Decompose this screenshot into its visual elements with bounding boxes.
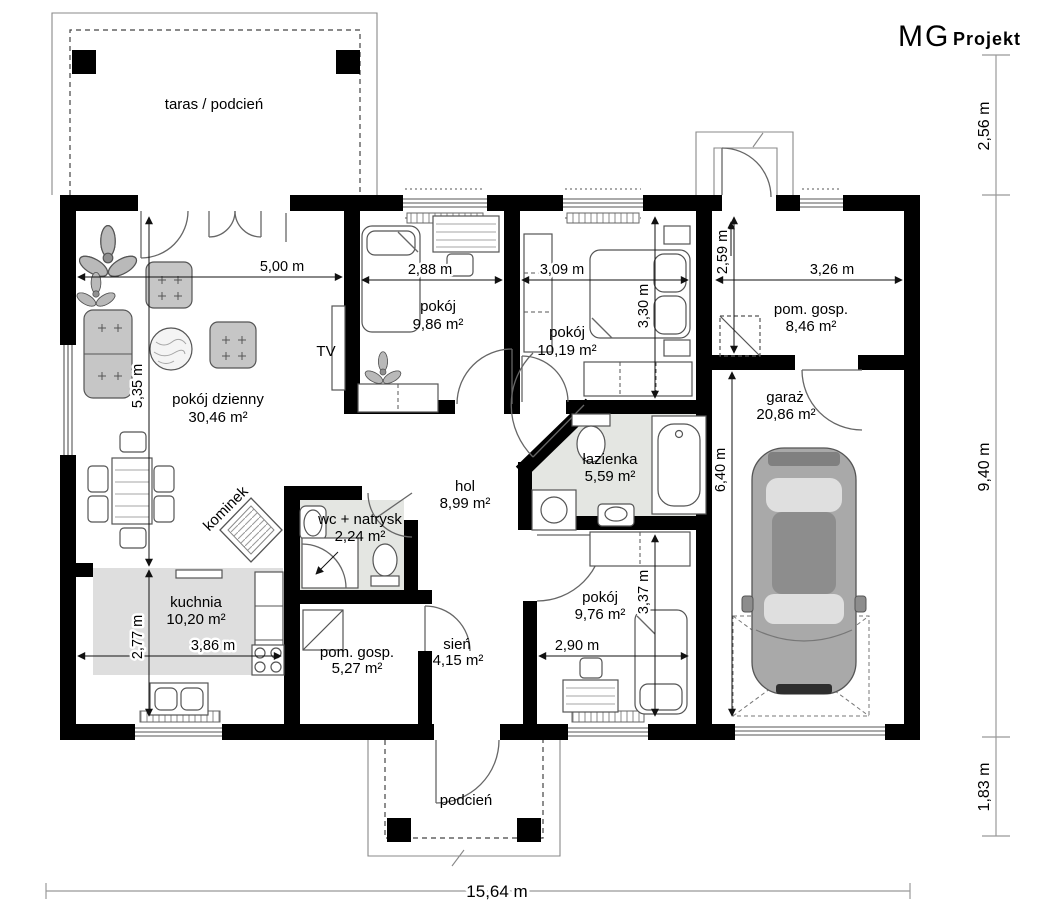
label-living-name: pokój dzienny (172, 391, 264, 408)
dim-right-middle: 9,40 m (976, 443, 993, 492)
dim-living-width: 5,00 m (260, 259, 304, 275)
plant-icon (76, 226, 139, 281)
armchair (146, 262, 192, 308)
window-living-left (64, 345, 72, 455)
window-room3 (568, 728, 648, 736)
plant-icon (75, 272, 117, 308)
porch-column (387, 818, 411, 842)
dim-right-bottom: 1,83 m (976, 763, 993, 812)
dim-right-top: 2,56 m (976, 102, 993, 151)
brand-logo: MG Projekt (898, 20, 1021, 53)
floor-plan-page: 5,00 m 2,88 m 3,09 m 3,26 m 2,59 m 3,30 … (0, 0, 1050, 920)
plant-icon (363, 352, 402, 386)
dim-utility-top-width: 3,26 m (810, 262, 854, 278)
window-utility-top (800, 189, 843, 207)
floor-plan-drawing: 5,00 m 2,88 m 3,09 m 3,26 m 2,59 m 3,30 … (0, 0, 1050, 920)
garage-door (735, 727, 885, 735)
label-bathroom-name: łazienka (582, 451, 638, 468)
shower (302, 538, 358, 588)
entrance-canopy (696, 132, 793, 195)
label-kitchen-area: 10,20 m² (166, 611, 225, 628)
armchair (210, 322, 256, 368)
label-terrace: taras / podcień (165, 96, 263, 113)
dim-room3-width: 2,90 m (555, 638, 599, 654)
dim-room2-width: 3,09 m (540, 262, 584, 278)
terrace-door (141, 211, 286, 258)
label-wc-area: 2,24 m² (335, 528, 386, 545)
label-room2-area: 10,19 m² (537, 342, 596, 359)
label-room1-name: pokój (420, 298, 456, 315)
label-room2-name: pokój (549, 324, 585, 341)
room2-door (522, 356, 568, 402)
label-hall-name: hol (455, 478, 475, 495)
dining-set (88, 432, 174, 548)
label-living-area: 30,46 m² (188, 409, 247, 426)
label-vestibule-name: sień (443, 636, 471, 653)
dim-room3-height: 3,37 m (636, 570, 652, 614)
logo-secondary: Projekt (953, 29, 1021, 49)
garage-content (733, 448, 869, 716)
dim-living-height: 5,35 m (130, 364, 146, 408)
label-porch: podcień (440, 792, 493, 809)
coffee-table (150, 328, 192, 370)
label-bathroom-area: 5,59 m² (585, 468, 636, 485)
label-garage-name: garaż (766, 389, 804, 406)
room1-door (457, 349, 512, 404)
label-vestibule-area: 4,15 m² (433, 652, 484, 669)
porch-column (517, 818, 541, 842)
label-kitchen-name: kuchnia (170, 594, 222, 611)
label-utility1-area: 8,46 m² (786, 318, 837, 335)
label-wc-name: wc + natrysk (317, 511, 402, 528)
terrace-column (72, 50, 96, 74)
room2-furniture (524, 226, 692, 396)
label-room3-area: 9,76 m² (575, 606, 626, 623)
dim-room1-width: 2,88 m (408, 262, 452, 278)
logo-primary: MG (898, 20, 950, 53)
label-utility2-area: 5,27 m² (332, 660, 383, 677)
terrace-column (336, 50, 360, 74)
car-icon (742, 448, 866, 694)
label-utility2-name: pom. gosp. (320, 644, 394, 661)
label-tv: TV (316, 343, 335, 360)
label-room1-area: 9,86 m² (413, 316, 464, 333)
dim-room2-height: 3,30 m (636, 284, 652, 328)
label-hall-area: 8,99 m² (440, 495, 491, 512)
window-kitchen (135, 728, 222, 736)
dim-bottom-total: 15,64 m (466, 882, 527, 901)
dim-kitchen-height: 2,77 m (130, 615, 146, 659)
label-room3-name: pokój (582, 589, 618, 606)
room3-furniture (563, 532, 690, 714)
dim-kitchen-width: 3,86 m (191, 638, 235, 654)
dim-garage-height: 6,40 m (713, 448, 729, 492)
label-utility1-name: pom. gosp. (774, 301, 848, 318)
dim-utility-top-height: 2,59 m (715, 230, 731, 274)
label-garage-area: 20,86 m² (756, 406, 815, 423)
